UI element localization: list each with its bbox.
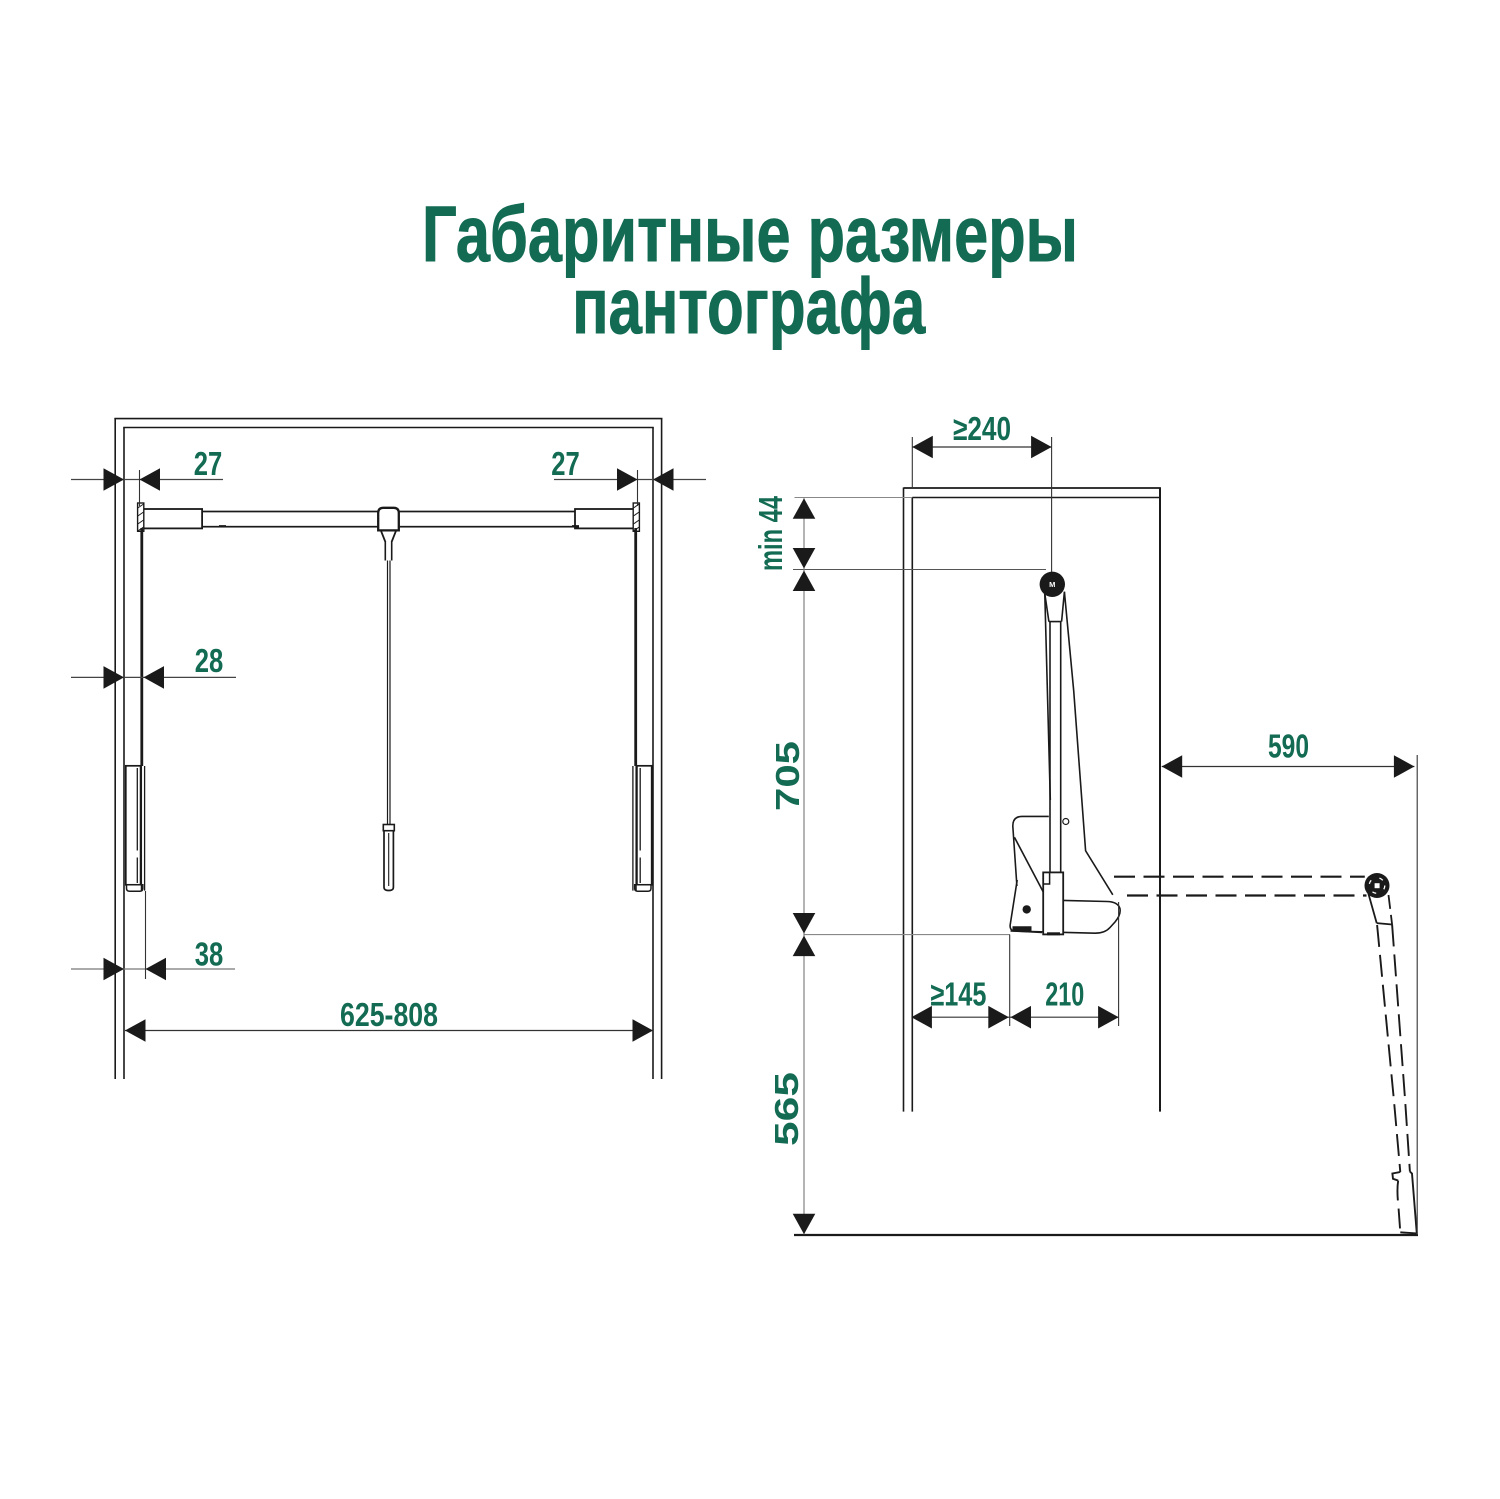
svg-text:38: 38 [195,936,224,973]
svg-text:пантографа: пантографа [572,261,926,350]
svg-text:≥145: ≥145 [930,976,986,1013]
svg-text:≥240: ≥240 [953,410,1011,447]
svg-text:28: 28 [195,642,224,679]
svg-text:625-808: 625-808 [340,996,438,1033]
svg-text:210: 210 [1045,976,1084,1013]
svg-text:705: 705 [769,741,806,811]
svg-text:min 44: min 44 [752,496,789,571]
svg-text:565: 565 [768,1072,805,1146]
svg-text:27: 27 [194,445,223,482]
svg-text:27: 27 [551,445,580,482]
svg-text:590: 590 [1268,728,1309,765]
svg-text:M: M [1049,580,1055,589]
